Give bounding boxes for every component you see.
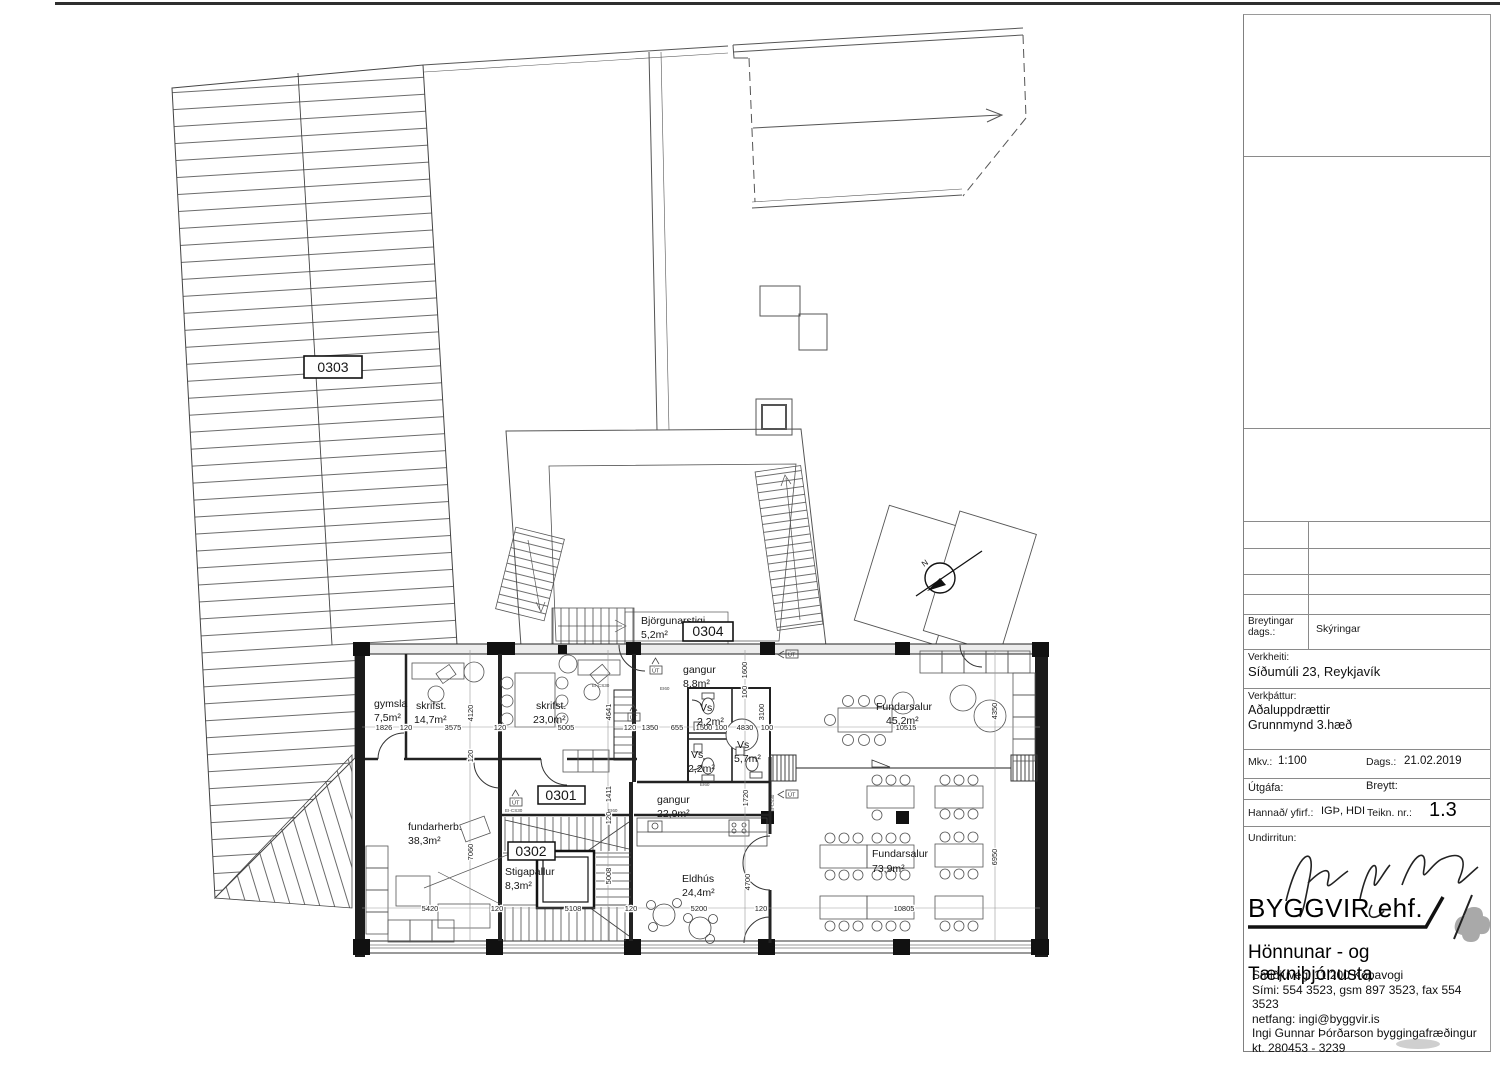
room-area: 7,5m² (374, 712, 401, 724)
company-address: Smiðjuvegi 11 200 Kópavogi Sími: 554 352… (1252, 968, 1490, 1055)
divider (1244, 521, 1490, 522)
roof-slope-arrow (753, 109, 1002, 128)
unit-tag: 0301 (545, 787, 576, 803)
dim: 4641 (604, 704, 613, 721)
dim: 3100 (757, 704, 766, 721)
date-value: 21.02.2019 (1404, 755, 1462, 767)
room-name: gangur (657, 794, 690, 806)
dim: 4700 (743, 874, 752, 891)
drawing-no-label: Teikn. nr.: (1367, 807, 1412, 819)
dim: 5008 (604, 868, 613, 885)
room-name: Vs (691, 749, 703, 761)
fire-label: EI-CS30 (770, 794, 775, 812)
divider (1244, 156, 1490, 157)
addr-line1: Smiðjuvegi 11 200 Kópavogi (1252, 968, 1403, 982)
dim: 120 (755, 904, 768, 913)
divider (1244, 548, 1490, 549)
dim: 100 (761, 723, 774, 732)
designed-label: Hannað/ yfirf.: (1248, 807, 1313, 819)
dim: 655 (671, 723, 684, 732)
divider (1244, 428, 1490, 429)
dim: 7060 (466, 844, 475, 861)
room-name: Vs (700, 702, 712, 714)
room-area: 45,2m² (886, 715, 919, 727)
room-area: 2,2m² (697, 716, 724, 728)
dim: 6950 (990, 849, 999, 866)
divider (1244, 594, 1490, 595)
room-name: Fundarsalur (872, 848, 929, 860)
bottom-window-wall (357, 941, 1048, 953)
roof-tag: 0303 (317, 359, 348, 375)
revision-divider (1308, 521, 1309, 649)
fire-label: EI60 (608, 808, 618, 813)
exit-label: ÚT (512, 800, 520, 807)
dim: 100 (740, 686, 749, 699)
dim: 120 (491, 904, 504, 913)
room-name: Eldhús (682, 873, 714, 885)
dim: 4120 (466, 705, 475, 722)
stove (729, 820, 749, 836)
room-area: 38,3m² (408, 835, 441, 847)
room-area: 5,7m² (734, 753, 761, 765)
skyringar-label: Skýringar (1316, 623, 1360, 635)
dim: 120 (625, 904, 638, 913)
room-area: 2,2m² (688, 763, 715, 775)
dim: 3575 (445, 723, 462, 732)
room-name: skrifst. (536, 700, 566, 712)
byggvir-logo (1244, 887, 1490, 947)
room-area: 5,2m² (641, 629, 668, 641)
dim: 10805 (894, 904, 915, 913)
dim: 1720 (741, 790, 750, 807)
room-area: 24,4m² (682, 887, 715, 899)
dim: 120 (466, 750, 475, 763)
escape-stair-label: Björgunarstigi 5,2m² 0304 (641, 615, 733, 641)
escape-ladder (552, 608, 634, 644)
divider (1244, 749, 1490, 750)
divider (1244, 574, 1490, 575)
dim: 120 (624, 723, 637, 732)
divider (1244, 614, 1490, 615)
scale-label: Mkv.: (1248, 756, 1272, 768)
room-name: Stigapallur (505, 866, 555, 878)
scale-value: 1:100 (1278, 755, 1307, 767)
dim: 4830 (737, 723, 754, 732)
dim: 120 (604, 812, 613, 825)
verkheiti-label: Verkheiti: (1248, 652, 1289, 663)
phase-line2: Grunnmynd 3.hæð (1248, 718, 1352, 732)
revision-header: Breytingar dags.: (1248, 616, 1306, 638)
courtyard-stair-right (755, 466, 823, 631)
stair-tag: 0302 (515, 843, 546, 859)
logo-swoosh (1248, 897, 1443, 927)
addr-line3: netfang: ingi@byggvir.is (1252, 1012, 1380, 1026)
dags-colon-label: dags.: (1248, 627, 1275, 638)
room-name: fundarherb. (408, 821, 462, 833)
room-name: gangur (683, 664, 716, 676)
utgafa-label: Útgáfa: (1248, 782, 1283, 794)
project-title: Síðumúli 23, Reykjavík (1248, 664, 1380, 679)
fire-label: EI-CS30 (505, 808, 523, 813)
addr-line5: kt. 280453 - 3239 (1252, 1041, 1345, 1055)
dim: 5108 (565, 904, 582, 913)
escape-tag: 0304 (692, 623, 723, 639)
room-area: 14,7m² (414, 714, 447, 726)
dim: 1826 (376, 723, 393, 732)
room-name: skrifst. (416, 700, 446, 712)
dim: 4350 (990, 703, 999, 720)
room-area: 22,9m² (657, 808, 690, 820)
fire-label: EI60 (700, 782, 710, 787)
addr-line4: Ingi Gunnar Þórðarson byggingafræðingur (1252, 1026, 1477, 1040)
room-area: 8,8m² (683, 678, 710, 690)
divider (1244, 778, 1490, 779)
upper-building-outline (423, 28, 1026, 208)
fire-label: EI60 (660, 686, 670, 691)
drawing-no-value: 1.3 (1429, 799, 1457, 822)
left-outer-wall (355, 645, 365, 957)
drawing-sheet: 0303 (0, 0, 1500, 1065)
designed-value: IGÞ, HDI (1321, 805, 1365, 817)
roof-plane-0303: 0303 (172, 65, 457, 908)
mid-roof-structures (496, 52, 827, 646)
addr-line2: Sími: 554 3523, gsm 897 3523, fax 554 35… (1252, 983, 1461, 1012)
dim: 1350 (642, 723, 659, 732)
dim: 1411 (604, 786, 613, 802)
title-block: Breytingar dags.: Skýringar Verkheiti: S… (1243, 14, 1491, 1052)
exit-label: ÚT (652, 668, 660, 675)
breytt-label: Breytt: (1366, 780, 1398, 792)
room-name: Vs (737, 739, 749, 751)
dim: 1600 (740, 662, 749, 679)
divider (1244, 688, 1490, 689)
dim: 5200 (691, 904, 708, 913)
right-outer-wall (1035, 645, 1048, 957)
dim: 120 (494, 723, 507, 732)
fire-label: EI-CS30 (592, 683, 610, 688)
room-name: Fundarsalur (876, 701, 933, 713)
divider (1244, 649, 1490, 650)
courtyard-stair-left (496, 527, 565, 621)
north-arrow: N (854, 505, 1036, 654)
room-area: 23,0m² (533, 714, 566, 726)
breytingar-label: Breytingar (1248, 616, 1294, 627)
phase-line1: Aðaluppdrættir (1248, 703, 1330, 717)
room-name: gymsla (374, 698, 407, 710)
dim: 5420 (422, 904, 439, 913)
exit-label: ÚT (788, 652, 796, 659)
verkthattur-label: Verkþáttur: (1248, 691, 1296, 702)
date-label: Dags.: (1366, 756, 1396, 768)
dim: 120 (400, 723, 413, 732)
exit-label: ÚT (630, 715, 638, 722)
exit-label: ÚT (788, 792, 796, 799)
room-area: 73,9m² (872, 863, 905, 875)
room-area: 8,3m² (505, 880, 532, 892)
